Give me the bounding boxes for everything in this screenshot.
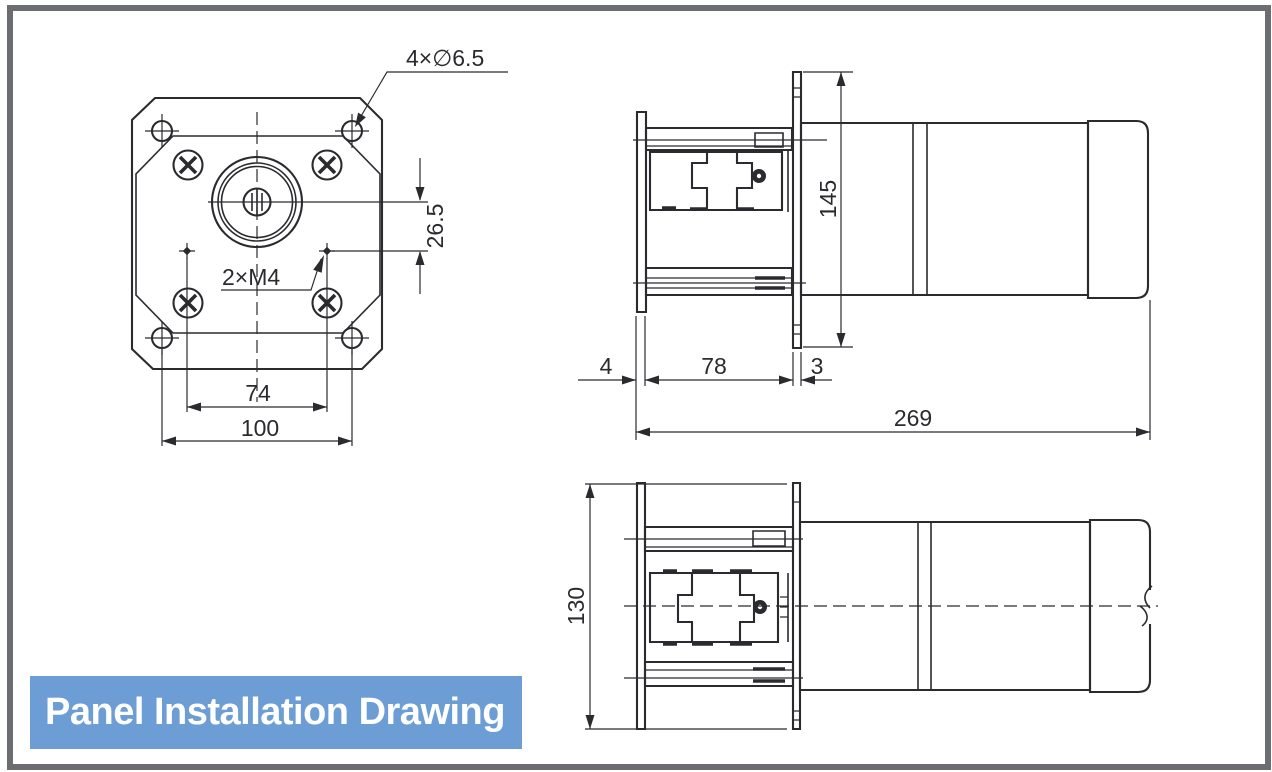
- top-view: 130: [563, 483, 1158, 729]
- dim-hole-spacing-text: 100: [241, 415, 279, 441]
- dim-panel-thickness: 3: [793, 352, 832, 386]
- screw-top-left: [174, 151, 203, 180]
- dim-shaft-offset: 26.5: [416, 158, 449, 294]
- corner-hole-top-left: [145, 114, 179, 148]
- thread-hole-callout-text: 2×M4: [222, 264, 280, 290]
- leader-arrow: [313, 255, 324, 273]
- device-body: [801, 123, 1088, 295]
- thread-hole-callout: 2×M4: [221, 255, 324, 290]
- dim-shaft-offset-text: 26.5: [422, 204, 448, 249]
- dim-body-width-text: 130: [563, 587, 589, 625]
- dim-behind-panel-text: 78: [701, 353, 727, 379]
- m4-hole-right: [319, 243, 335, 259]
- m4-hole-left: [179, 243, 195, 259]
- dim-body-width: 130: [563, 484, 595, 729]
- dim-front-plate: 4: [578, 316, 645, 440]
- screw-top-right: [313, 151, 342, 180]
- title-banner-text: Panel Installation Drawing: [45, 691, 505, 734]
- panel-installation-drawing: 4×∅6.5 2×M4 26.5: [0, 0, 1272, 772]
- panel-flange: [793, 72, 801, 348]
- dim-panel-thickness-text: 3: [811, 353, 824, 379]
- dim-flange-height: 145: [803, 72, 853, 347]
- dim-flange-height-text: 145: [815, 180, 841, 218]
- corner-hole-top-right: [335, 114, 369, 148]
- end-cap: [1088, 121, 1148, 298]
- bottom-rail: [646, 268, 792, 295]
- side-view: 145 4 78 3: [578, 72, 1150, 440]
- front-plate: [637, 112, 646, 312]
- dim-behind-panel: 78: [645, 353, 793, 385]
- dim-front-plate-text: 4: [600, 353, 613, 379]
- dim-total-length-text: 269: [894, 405, 932, 431]
- screw-bottom-left: [174, 289, 203, 318]
- technical-drawing: 4×∅6.5 2×M4 26.5: [0, 0, 1272, 772]
- coupler-cross: [692, 152, 752, 210]
- front-view: 4×∅6.5 2×M4 26.5: [132, 45, 508, 446]
- title-banner: Panel Installation Drawing: [30, 676, 522, 749]
- coupler-cross: [678, 573, 754, 642]
- dim-thread-spacing-text: 74: [245, 380, 271, 406]
- corner-hole-callout-text: 4×∅6.5: [406, 45, 484, 71]
